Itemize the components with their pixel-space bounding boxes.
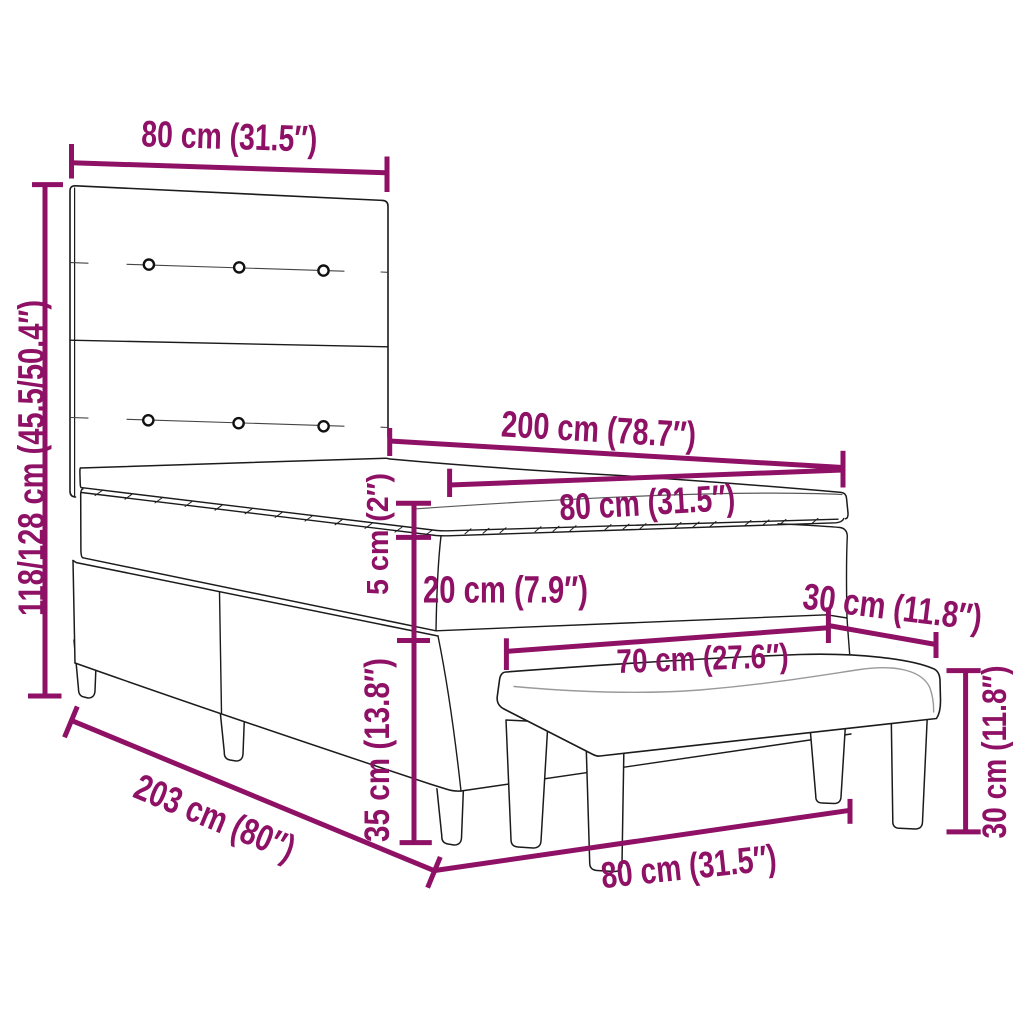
svg-text:5 cm (2″): 5 cm (2″)	[360, 473, 395, 595]
svg-text:118/128 cm (45.5/50.4″): 118/128 cm (45.5/50.4″)	[11, 300, 52, 616]
svg-text:70 cm (27.6″): 70 cm (27.6″)	[616, 637, 789, 681]
svg-text:20 cm (7.9″): 20 cm (7.9″)	[423, 570, 588, 612]
svg-text:35 cm (13.8″): 35 cm (13.8″)	[358, 658, 397, 842]
svg-text:30 cm (11.8″): 30 cm (11.8″)	[976, 666, 1014, 839]
svg-text:80 cm (31.5″): 80 cm (31.5″)	[141, 113, 318, 160]
